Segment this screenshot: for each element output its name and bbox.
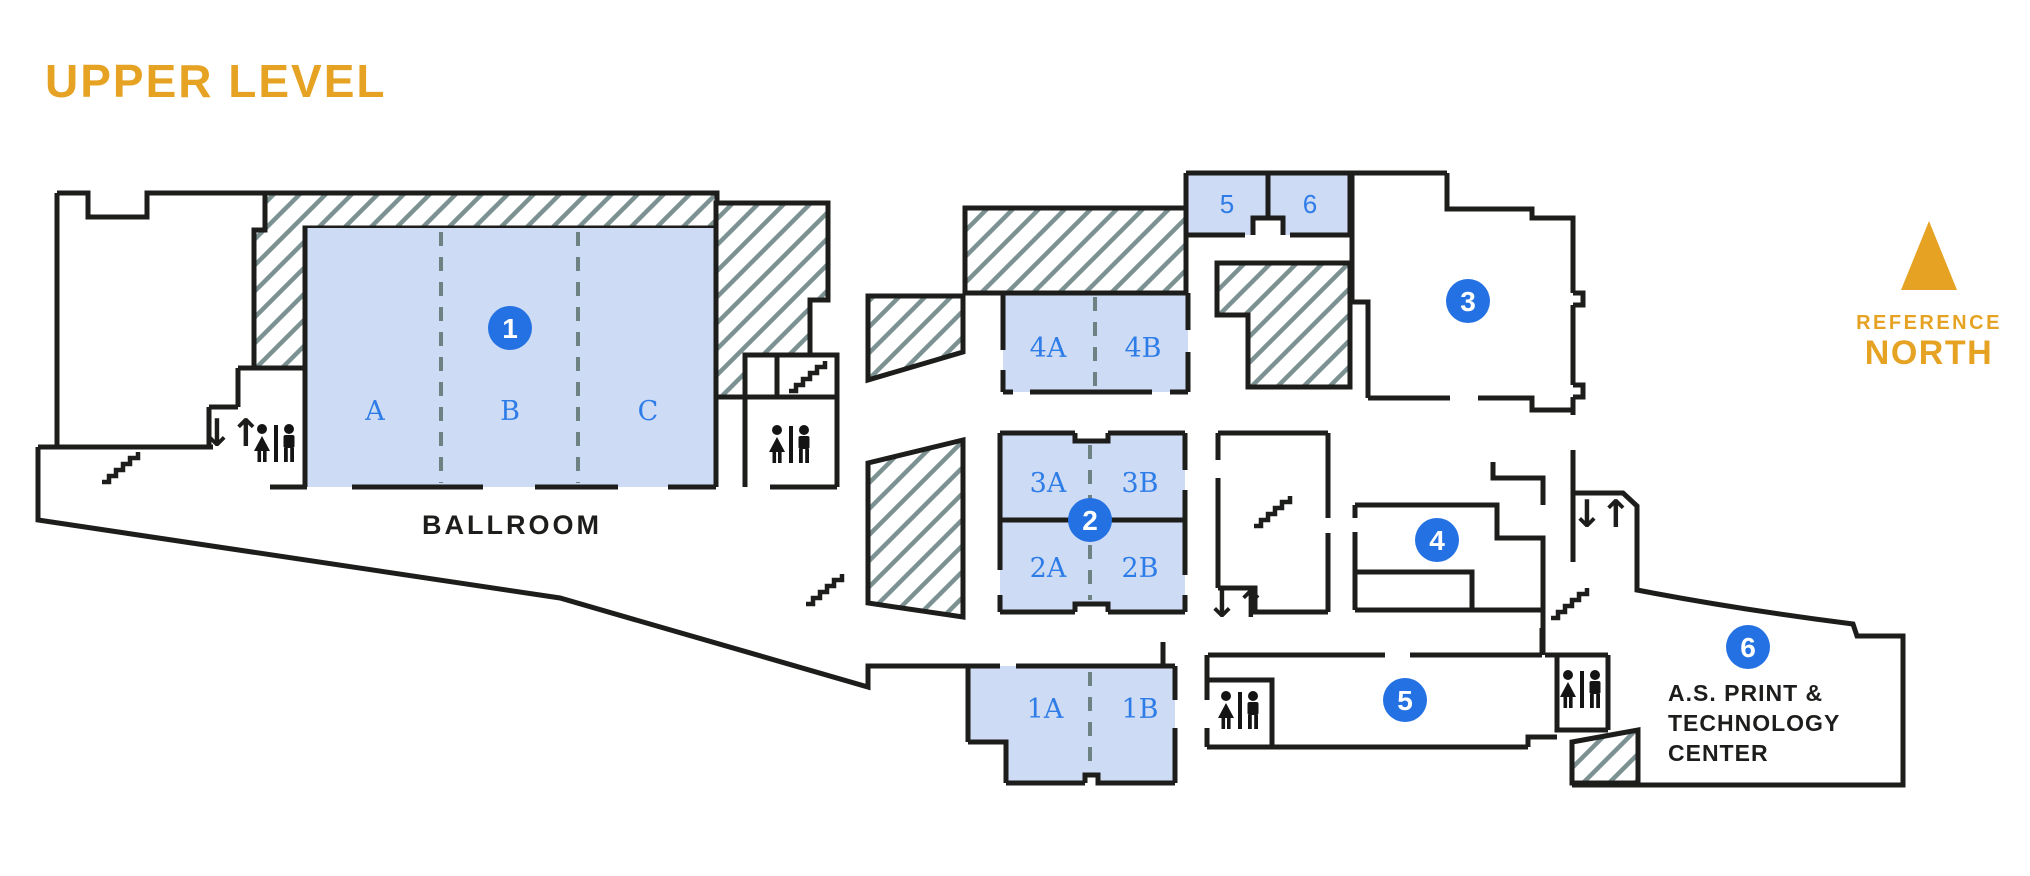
hatched-area bbox=[868, 440, 963, 617]
room-1a-label: 1A bbox=[1027, 694, 1064, 725]
page-title: UPPER LEVEL bbox=[45, 55, 387, 107]
hatched-area bbox=[965, 208, 1186, 293]
marker-3-number: 3 bbox=[1460, 286, 1476, 317]
ballroom-section-b-label: B bbox=[500, 396, 520, 427]
ballroom-label: BALLROOM bbox=[422, 510, 602, 540]
elevator-icon: ↓↑ bbox=[1571, 492, 1629, 536]
marker-2: 2 bbox=[1068, 498, 1112, 542]
ballroom-section-c-label: C bbox=[638, 396, 659, 427]
room-3a-label: 3A bbox=[1030, 468, 1067, 499]
compass-north-label: NORTH bbox=[1865, 334, 1993, 372]
room-2b-label: 2B bbox=[1121, 553, 1158, 584]
room-6-label: 6 bbox=[1303, 189, 1317, 219]
elevator-icon: ↓↑ bbox=[1206, 582, 1264, 626]
print-center-line-1: A.S. PRINT & bbox=[1668, 680, 1823, 706]
elevator-icon: ↓↑ bbox=[201, 411, 259, 455]
room-5-label: 5 bbox=[1220, 189, 1234, 219]
marker-1: 1 bbox=[488, 306, 532, 350]
marker-5-number: 5 bbox=[1397, 685, 1413, 716]
print-center-line-2: TECHNOLOGY bbox=[1668, 710, 1840, 736]
marker-5: 5 bbox=[1383, 678, 1427, 722]
room-2a-label: 2A bbox=[1030, 553, 1067, 584]
hatched-area bbox=[1572, 730, 1638, 783]
compass-reference-label: REFERENCE bbox=[1856, 312, 2002, 334]
ballroom-section-a-label: A bbox=[364, 396, 385, 427]
marker-4: 4 bbox=[1415, 518, 1459, 562]
room-ballroom bbox=[305, 228, 716, 487]
room-4a-label: 4A bbox=[1030, 333, 1067, 364]
wall-notch bbox=[1253, 218, 1283, 235]
print-center-line-3: CENTER bbox=[1668, 740, 1769, 766]
marker-4-number: 4 bbox=[1429, 525, 1445, 556]
room-4b-label: 4B bbox=[1124, 333, 1161, 364]
marker-2-number: 2 bbox=[1082, 505, 1098, 536]
marker-6: 6 bbox=[1726, 625, 1770, 669]
room-1b-label: 1B bbox=[1121, 694, 1158, 725]
marker-6-number: 6 bbox=[1740, 632, 1756, 663]
room-3b-label: 3B bbox=[1121, 468, 1158, 499]
marker-3: 3 bbox=[1446, 279, 1490, 323]
marker-1-number: 1 bbox=[502, 313, 518, 344]
floor-plan-upper-level: UPPER LEVEL bbox=[0, 0, 2030, 876]
